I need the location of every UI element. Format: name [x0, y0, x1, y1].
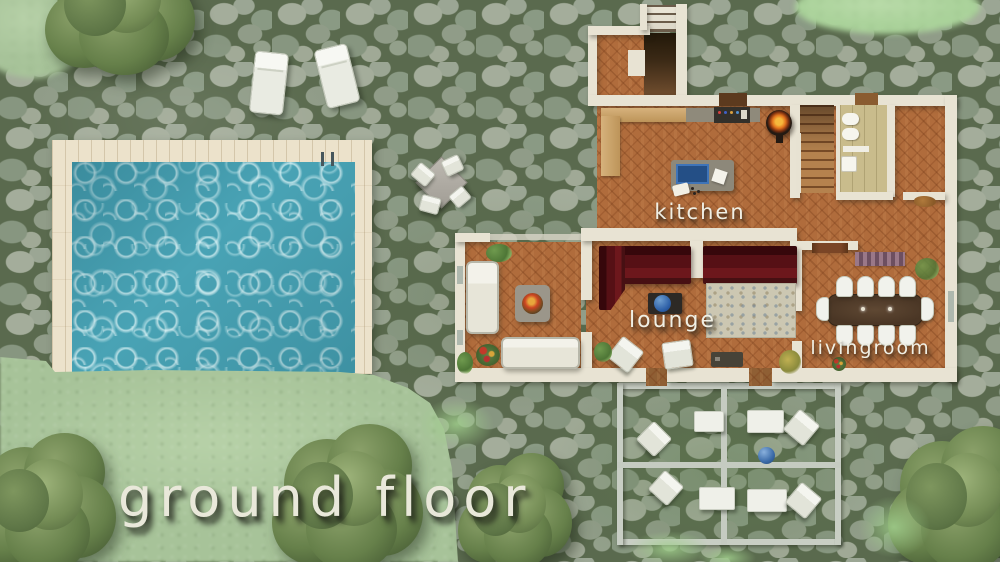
- wall-house-bottom: [455, 368, 647, 382]
- wall-house-bottom: [667, 368, 750, 382]
- plant: [486, 244, 512, 262]
- dining-chair: [878, 276, 895, 297]
- wall-wing-left: [455, 233, 465, 368]
- bathroom-sink: [842, 113, 859, 125]
- flower: [832, 357, 846, 371]
- wall-pillar-lounge: [690, 241, 703, 278]
- moss-patch-4: [698, 546, 756, 562]
- bathroom-shelf: [843, 146, 869, 152]
- kitchen-counter-gray: [686, 108, 714, 122]
- entry-step: [647, 7, 676, 13]
- tree-bottom-left: [0, 433, 120, 562]
- floor-plan-canvas: kitchen lounge livingroom ground floor: [0, 0, 1000, 562]
- flower-pot: [476, 344, 500, 366]
- wall-house-top: [588, 95, 957, 106]
- pool-ladder-rail: [321, 152, 324, 166]
- dining-table: [827, 294, 923, 326]
- plant: [915, 258, 939, 280]
- plant: [594, 342, 612, 362]
- pergola-table-1: [694, 411, 724, 432]
- fireplace-flue: [776, 134, 783, 143]
- tree-top-left: [45, 0, 200, 78]
- dining-chair: [816, 297, 829, 321]
- swimming-pool: [72, 162, 355, 373]
- wall-house-bottom: [772, 368, 957, 382]
- lounge-label: lounge: [590, 308, 755, 333]
- stove: [714, 107, 750, 123]
- kitchen-item: [691, 187, 694, 190]
- kitchen-counter-left: [601, 116, 620, 176]
- door-path-lounge2: [749, 368, 772, 386]
- stair-banister: [796, 133, 801, 193]
- wall-vestibule-left: [588, 26, 597, 98]
- blue-pot: [758, 447, 775, 464]
- dining-chair: [836, 276, 853, 297]
- door-path-lounge: [646, 368, 667, 386]
- dining-chair: [899, 276, 916, 297]
- tv-cabinet: [711, 352, 743, 367]
- moss-patch-1: [420, 398, 494, 450]
- sun-lounger-1: [249, 50, 289, 115]
- window-wing-left: [457, 266, 463, 284]
- toilet: [841, 156, 857, 172]
- dining-chair: [921, 297, 934, 321]
- bathroom-sink: [842, 128, 859, 140]
- plant: [457, 352, 473, 374]
- window-right: [948, 291, 954, 322]
- entry-step: [647, 15, 676, 21]
- moss-patch-3: [858, 496, 930, 558]
- door-top-kitchen: [719, 93, 747, 106]
- kitchen-label: kitchen: [600, 200, 800, 224]
- livingroom-label: livingroom: [788, 337, 953, 359]
- floor-title: ground floor: [118, 466, 533, 529]
- fireplace-stove: [766, 110, 792, 136]
- kitchen-sink: [676, 164, 709, 184]
- wall-bath-right: [887, 105, 895, 197]
- pergola-table-2: [747, 410, 784, 433]
- fire-pit-table: [515, 285, 550, 322]
- wall-bath-bottom: [836, 192, 893, 200]
- pergola-table-3: [699, 487, 735, 510]
- sideboard: [812, 243, 848, 253]
- kitchen-counter-gray2: [750, 108, 760, 122]
- entry-step: [647, 23, 676, 29]
- pergola-beam: [617, 462, 841, 468]
- dining-chair: [857, 276, 874, 297]
- terrace-sofa-vertical: [466, 261, 499, 334]
- sofa-red-right: [703, 246, 797, 284]
- wall-wing-top: [455, 233, 490, 242]
- wall-vestibule-right: [676, 4, 687, 98]
- basement-stairwell: [644, 33, 676, 95]
- entry-closet: [628, 50, 645, 76]
- glass-wing-top: [490, 234, 583, 240]
- pool-ladder-rail: [331, 152, 334, 166]
- lounge-armchair: [661, 339, 693, 370]
- wall-kitchen-lounge: [581, 228, 797, 241]
- small-ornament: [914, 196, 936, 207]
- wall-lounge-left: [581, 233, 592, 300]
- pergola-table-4: [747, 489, 787, 512]
- terrace-sofa-horizontal: [501, 337, 580, 369]
- wall-lounge-left: [581, 332, 592, 368]
- window-wing-left: [457, 330, 463, 345]
- staircase: [800, 105, 834, 193]
- kitchen-item: [693, 192, 696, 195]
- wall-steps-left: [640, 4, 647, 30]
- kitchen-item: [697, 190, 700, 193]
- striped-runner-rug: [855, 252, 905, 266]
